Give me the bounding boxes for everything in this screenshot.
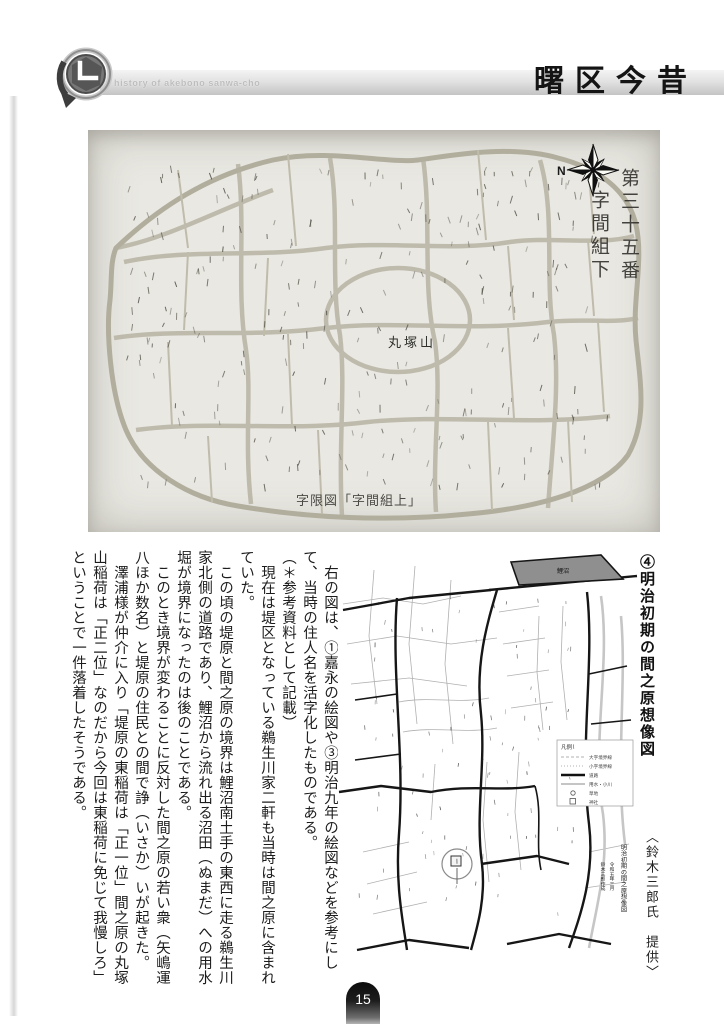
inscription-line: 令和五年三月: [609, 861, 614, 892]
history-clock-icon: [52, 46, 114, 112]
legend-item: 大字境界線: [589, 754, 612, 761]
map-corner-calligraphy-line1: 第三十五番: [614, 168, 644, 283]
compass-n-label: N: [557, 164, 566, 178]
figure2-map-drawing: 鯉沼 凡例 大字境界線 小字境界線 道路 用水・小川 草地 神社: [338, 552, 640, 952]
paragraph: （＊参考資料として記載）: [277, 550, 298, 998]
page-title: 曙区今昔: [534, 56, 698, 100]
legend-title: 凡例: [561, 743, 573, 751]
page-gutter-shadow: [9, 96, 18, 1016]
figure2-map: 鯉沼 凡例 大字境界線 小字境界線 道路 用水・小川 草地 神社: [338, 552, 640, 952]
figure2-credit: 〈鈴木三郎氏 提供〉: [642, 830, 661, 980]
map-corner-calligraphy-line2: 字間組下: [584, 168, 614, 283]
pond-label: 鯉沼: [557, 567, 569, 575]
paragraph: この頃の堤原と間之原の境界は鯉沼南土手の東西に走る鵜生川家北側の道路であり、鯉沼…: [172, 550, 235, 998]
paragraph: 右の図は、①嘉永の絵図や③明治九年の絵図などを参考にして、当時の住人名を活字化し…: [298, 550, 340, 998]
legend-box: 凡例 大字境界線 小字境界線 道路 用水・小川 草地 神社: [557, 740, 633, 806]
parcel-boundaries-thick: [114, 158, 638, 516]
map-corner-calligraphy: 第三十五番 字間組下: [584, 168, 644, 283]
paragraph: このとき境界が変わることに反対した間之原の若い衆（矢嶋運八ほか数名）と堤原の住民…: [130, 550, 172, 998]
old-map-drawing: N: [88, 130, 660, 532]
handwriting-marks: [127, 166, 608, 492]
page-number-badge: 15: [346, 982, 380, 1024]
legend-item: 用水・小川: [589, 781, 612, 788]
header-subtitle: history of akebono sanwa-cho: [114, 78, 260, 88]
hill-label: 丸塚山: [388, 332, 436, 351]
old-map-photo: N 第三十五番 字間組下 丸塚山 字限図「字間組上」: [88, 130, 660, 532]
paragraph: 現在は堤区となっている鵜生川家二軒も当時は間之原に含まれていた。: [235, 550, 277, 998]
mound-shrine: [442, 849, 472, 884]
legend-item: 小字境界線: [589, 763, 612, 770]
article-body: 右の図は、①嘉永の絵図や③明治九年の絵図などを参考にして、当時の住人名を活字化し…: [48, 550, 340, 998]
legend-item: 道路: [589, 772, 599, 779]
scanned-page: history of akebono sanwa-cho 曙区今昔: [0, 0, 724, 1024]
figure1-caption: 字限図「字間組上」: [296, 490, 422, 509]
legend-item: 神社: [589, 799, 599, 806]
inscription-line: 明治初期の間之原想像図: [620, 844, 627, 913]
inscription-line: 鈴木三郎作成: [600, 861, 605, 892]
paragraph: 澤浦様が仲介に入り「堤原の東稲荷は「正一位」間之原の丸塚山稲荷は「正二位」なのだ…: [67, 550, 130, 998]
legend-item: 草地: [589, 790, 599, 797]
